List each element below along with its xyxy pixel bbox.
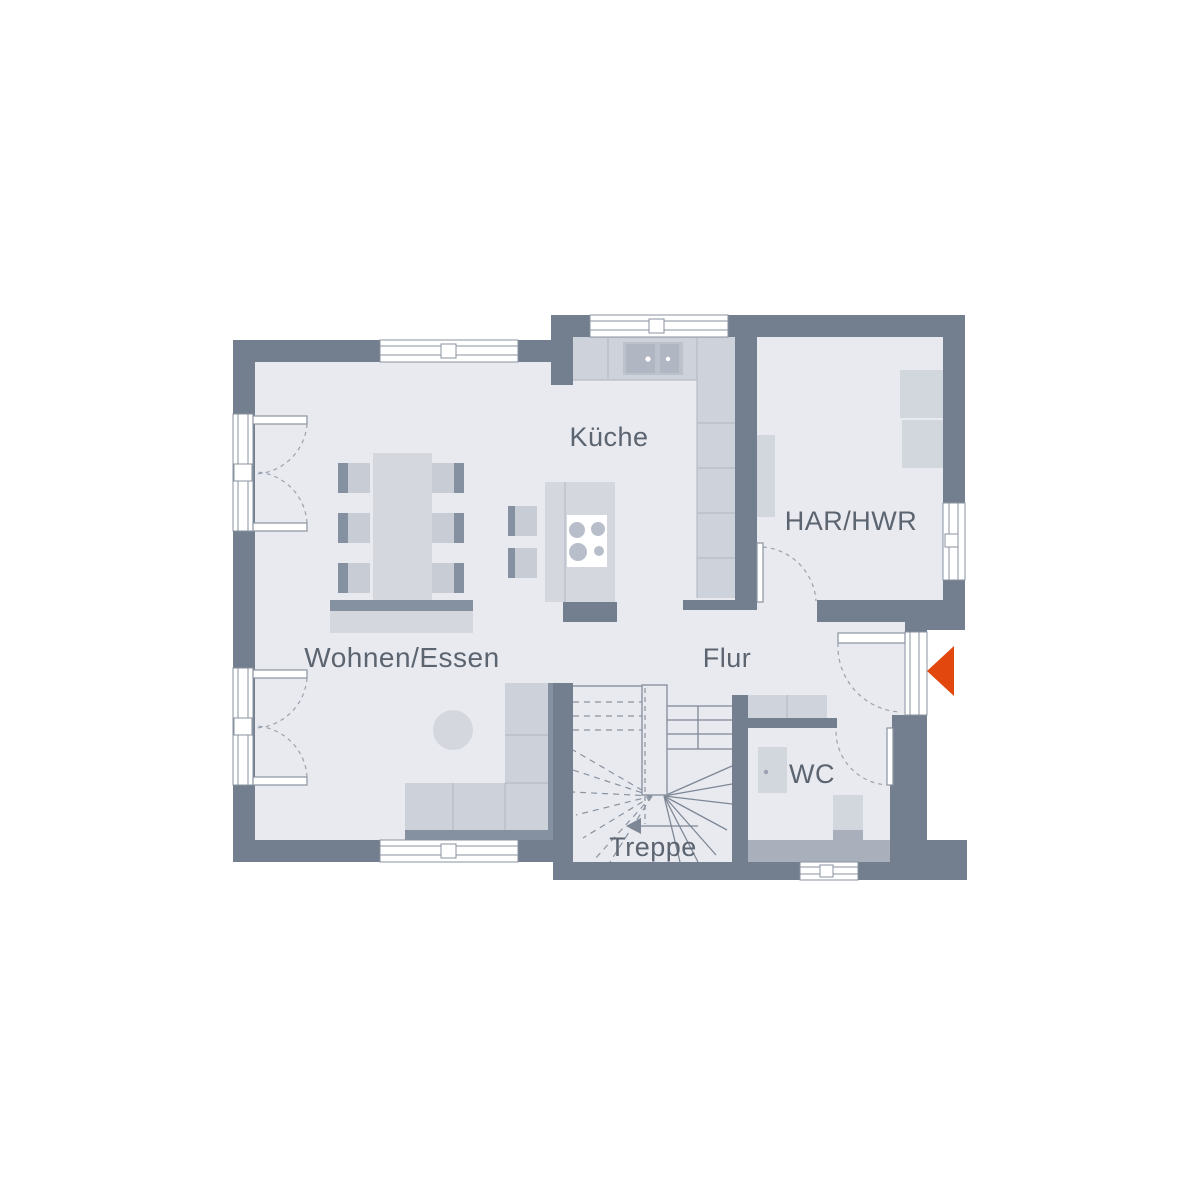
window-top-living [380,340,518,362]
window-har [943,503,965,580]
dining-set [330,453,473,633]
toilet [833,830,863,862]
room-label-kueche: Küche [569,422,648,452]
faucet-icon [645,356,650,361]
window-wc [800,862,858,880]
window-handle-icon [441,844,456,858]
wc-sink-drain-icon [764,770,768,774]
wall-kitchen-stub [683,600,757,610]
counter-side-run [697,380,737,598]
stool-seat [515,548,537,578]
wall-below-door [892,715,927,730]
chair-back [338,563,348,593]
hall-furniture [748,695,827,718]
dining-table [373,453,432,600]
wall-kitchen-har-divider [735,337,757,600]
floor-plan-drawing: Küche HAR/HWR Wohnen/Essen Flur WC Trepp… [0,0,1200,1200]
chair-seat [432,513,454,543]
door-leaf [253,416,307,424]
chair-seat [432,463,454,493]
chair-seat [432,563,454,593]
window-handle-icon [441,344,456,358]
chair-back [338,513,348,543]
entrance-arrow-icon [927,646,954,696]
room-label-treppe: Treppe [609,832,697,862]
window-top-kitchen [590,315,728,337]
coffee-table [433,710,473,750]
chair-back [454,463,464,493]
chair-back [454,513,464,543]
window-handle-icon [649,319,664,333]
wall-stair-left [553,683,573,862]
wall-bottom-right-corner [903,840,967,880]
sink-basin-large [626,344,655,373]
chair-seat [348,563,370,593]
sofa-seats-horizontal [405,783,505,830]
door-leaf [253,777,307,785]
wall-above-door [905,610,927,632]
window-handle-icon [234,718,252,735]
chair-seat [348,513,370,543]
window-handle-icon [234,464,252,481]
chair-back [338,463,348,493]
door-leaf [838,633,905,643]
room-label-flur: Flur [703,643,752,673]
sideboard [330,611,473,633]
stool-back [508,548,515,578]
chair-back [454,563,464,593]
dryer [902,420,943,468]
utility-cabinet [757,435,775,517]
room-label-har-hwr: HAR/HWR [785,506,918,536]
window-handle-icon [820,865,833,877]
sofa-seats-vertical [505,683,548,830]
door-leaf [253,670,307,678]
wall-island-stub [563,602,617,622]
dining-chairs-right [432,463,464,593]
wc-plinth [748,840,890,862]
chair-seat [348,463,370,493]
wall-stair-right [732,695,748,862]
dining-chairs-left [338,463,370,593]
wall-entry-corner [923,600,965,630]
sideboard-top [330,600,473,611]
faucet-icon [666,357,670,361]
door-leaf [887,728,893,785]
window-handle-icon [945,534,958,547]
stool-seat [515,506,537,536]
wc-sink [758,747,787,793]
door-leaf [253,523,307,531]
window-bottom-living [380,840,518,862]
room-label-wohnen-essen: Wohnen/Essen [304,642,499,673]
wall-wc-top [748,718,837,728]
washing-machine [900,370,943,418]
toilet-cistern [833,795,863,830]
room-label-wc: WC [789,759,835,789]
stair-well [642,685,667,795]
stool-back [508,506,515,536]
door-leaf [757,543,763,602]
floor-plan: Küche HAR/HWR Wohnen/Essen Flur WC Trepp… [0,0,1200,1200]
